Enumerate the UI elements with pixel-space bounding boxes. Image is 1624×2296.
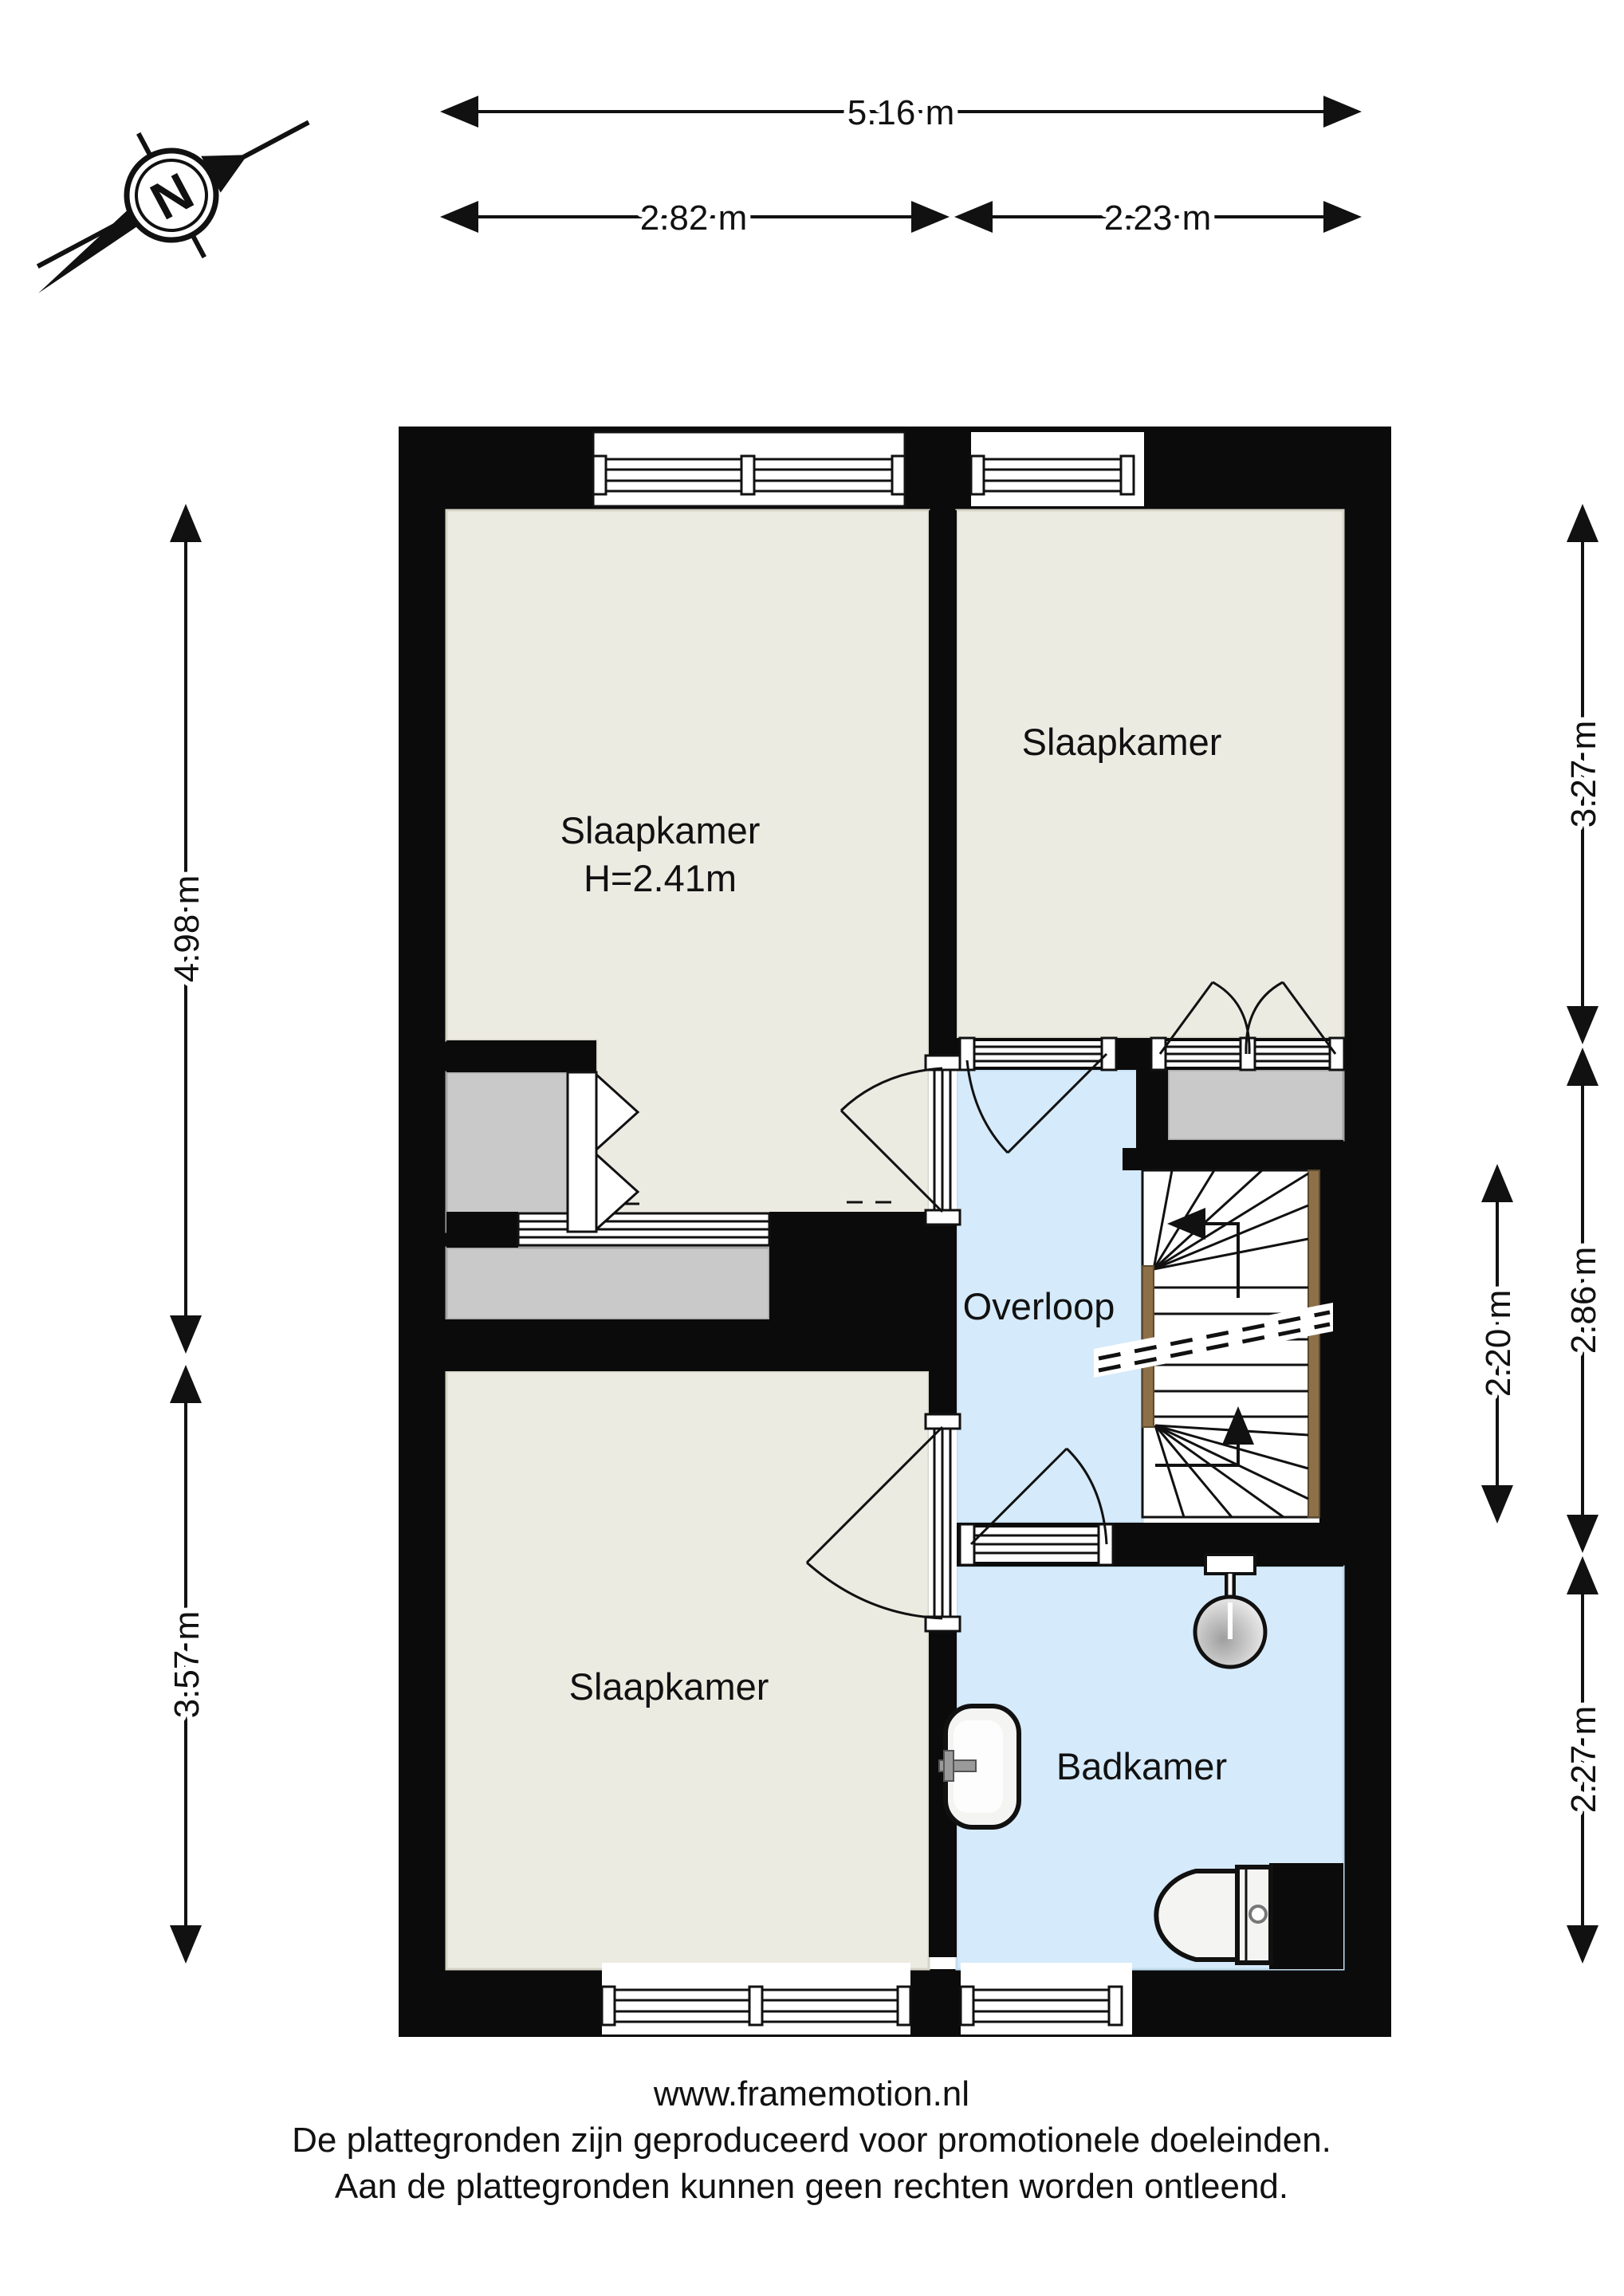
dim-left-upper: 4.98 m <box>167 875 206 983</box>
footer-disclaimer-line2: Aan de plattegronden kunnen geen rechten… <box>335 2167 1288 2206</box>
gray-strip-floor <box>446 1248 769 1319</box>
toilet-icon <box>1156 1867 1271 1963</box>
dim-right-upper: 3.27 m <box>1564 721 1603 828</box>
dim-right-lower: 2.27 m <box>1564 1706 1603 1814</box>
dim-top-total: 5.16 m <box>847 93 955 132</box>
dim-top-right: 2.23 m <box>1104 199 1212 238</box>
label-bedroom-large-height: H=2.41m <box>584 857 737 899</box>
footer: www.framemotion.nl De plattegronden zijn… <box>292 2074 1331 2206</box>
label-bedroom-topright: Slaapkamer <box>1022 721 1222 763</box>
floorplan-page: N <box>0 0 1624 2296</box>
window-top-left <box>593 432 905 506</box>
gray-zone-right-floor <box>1168 1070 1343 1140</box>
floorplan-svg: N <box>0 0 1624 2296</box>
shower-icon <box>1195 1555 1265 1667</box>
label-bedroom-large: Slaapkamer <box>560 809 761 851</box>
compass-north-icon: N <box>0 61 341 334</box>
dim-left-lower: 3.57 m <box>167 1611 206 1719</box>
label-bathroom: Badkamer <box>1056 1745 1227 1787</box>
room-bedroom-topright-floor <box>957 510 1343 1038</box>
closet-floor <box>446 1072 568 1232</box>
dim-stairwell: 2.20 m <box>1479 1290 1518 1398</box>
footer-website: www.framemotion.nl <box>653 2074 969 2113</box>
label-bedroom-bottom: Slaapkamer <box>569 1665 769 1708</box>
sink-icon <box>939 1706 1019 1827</box>
window-top-right <box>971 432 1144 506</box>
window-bathroom <box>961 1963 1132 2035</box>
label-landing: Overloop <box>963 1285 1115 1327</box>
window-bottom-left <box>602 1963 910 2035</box>
footer-disclaimer-line1: De plattegronden zijn geproduceerd voor … <box>292 2121 1331 2160</box>
dim-top-left: 2.82 m <box>640 199 748 238</box>
dim-right-middle: 2.86 m <box>1564 1247 1603 1354</box>
